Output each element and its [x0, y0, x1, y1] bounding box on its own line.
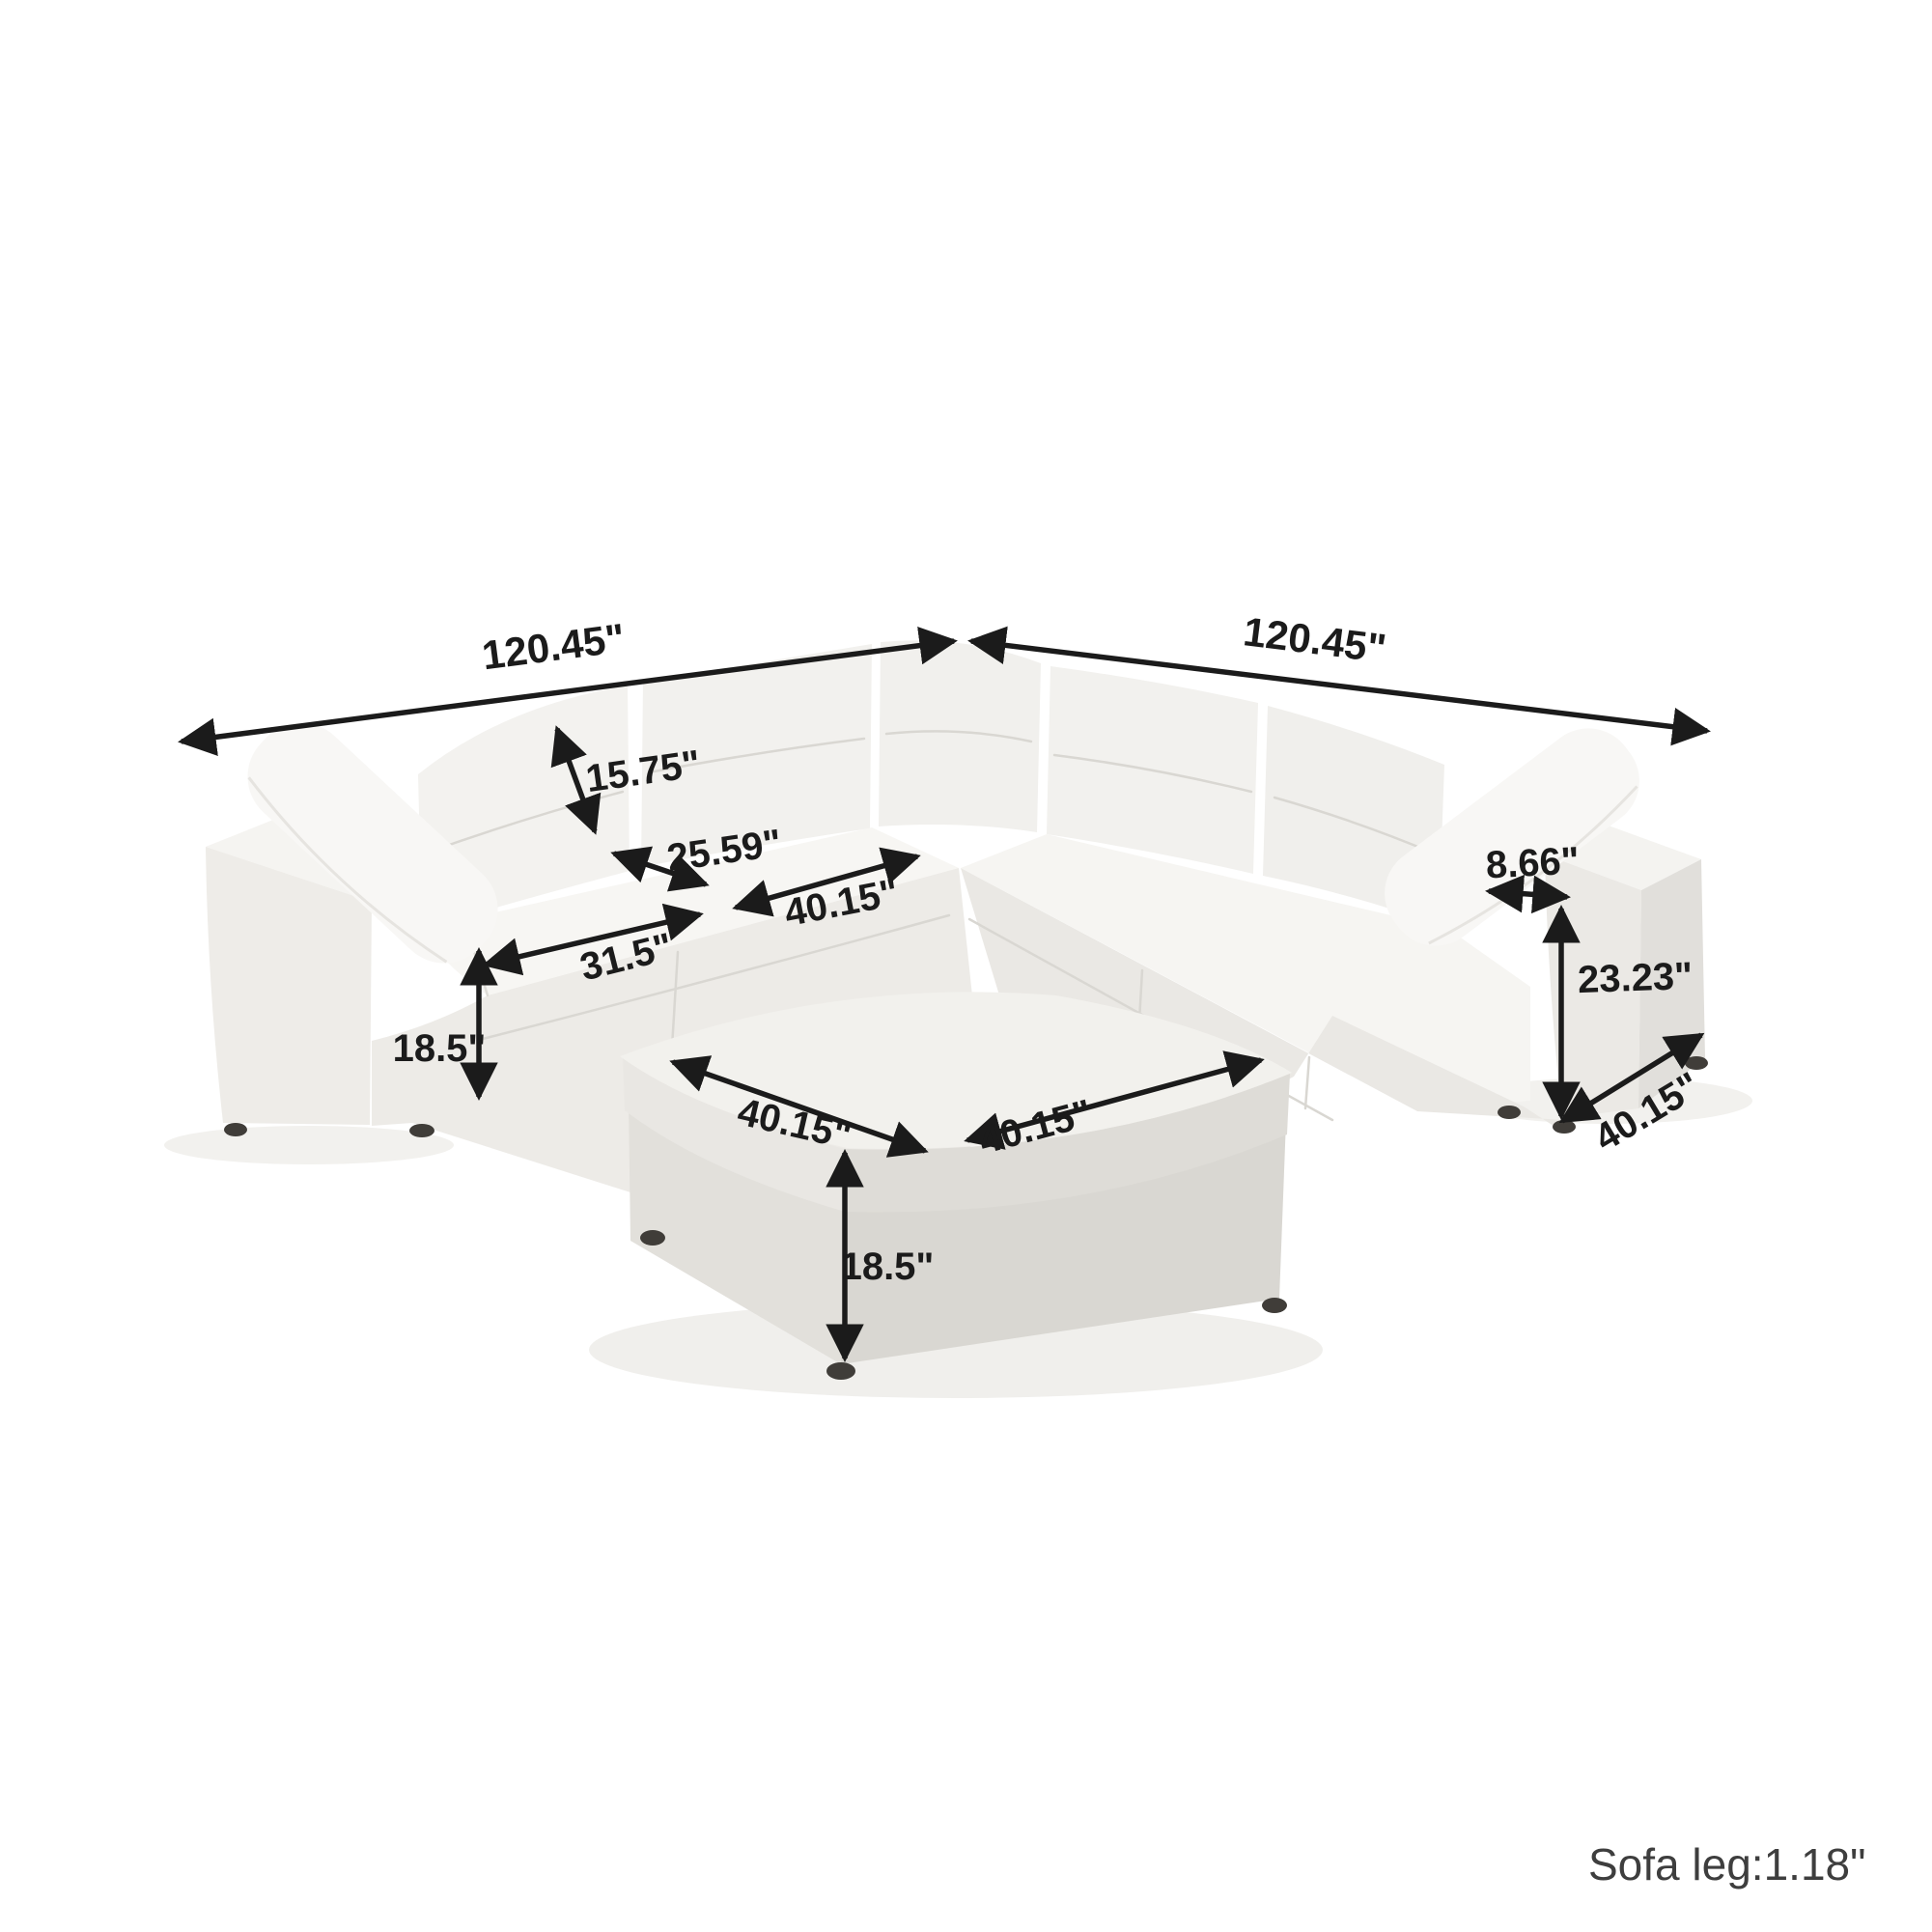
sofa-dimension-illustration: 120.45" 120.45" 15.75" 25.59" 40.15" 31.…: [0, 0, 1932, 1932]
back-cushion-corner: [879, 640, 1041, 832]
ottoman-leg: [640, 1230, 665, 1246]
product-dimension-diagram: 120.45" 120.45" 15.75" 25.59" 40.15" 31.…: [0, 0, 1932, 1932]
label-ottoman-height: 18.5": [841, 1246, 935, 1288]
sofa-leg: [409, 1124, 434, 1137]
ottoman-leg: [826, 1362, 855, 1380]
sofa-leg-footnote: Sofa leg:1.18": [1588, 1839, 1865, 1890]
label-base-height: 18.5": [393, 1027, 487, 1070]
ottoman-leg: [1262, 1298, 1287, 1313]
right-seat-cushion-seam-2: [1305, 1057, 1309, 1108]
sofa-leg: [1498, 1106, 1521, 1119]
sofa-leg: [224, 1123, 247, 1136]
label-back-width-right: 120.45": [1241, 608, 1388, 671]
label-arm-top-width: 8.66": [1485, 840, 1581, 887]
sofa-leg: [1685, 1056, 1708, 1070]
label-back-width-left: 120.45": [480, 615, 628, 679]
label-arm-height: 23.23": [1577, 955, 1694, 1001]
